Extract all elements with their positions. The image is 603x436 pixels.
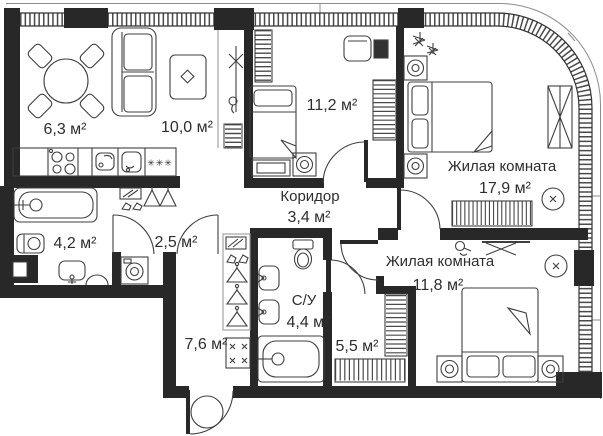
stove-icon (49, 149, 75, 174)
wall (376, 286, 416, 294)
lamp-icon (542, 361, 559, 378)
wall-left (4, 8, 20, 188)
wall (323, 232, 332, 260)
label-living-area: 10,0 м² (161, 119, 214, 136)
name-bedroom-11-8: Жилая комната (386, 253, 495, 270)
nightstand (404, 154, 427, 178)
pillow (503, 356, 535, 377)
radiator-living (224, 124, 242, 148)
lamp-icon (408, 158, 424, 174)
wall (440, 228, 588, 240)
label-storage: 2,5 м² (154, 234, 198, 251)
kitchen-sink-icon (96, 153, 114, 170)
wall-pier (398, 8, 424, 28)
cabinet-inner (257, 163, 285, 173)
wall (366, 178, 404, 188)
shoes-icon (227, 255, 248, 263)
wall-pier (64, 8, 108, 28)
rug (170, 55, 206, 99)
wall (408, 294, 416, 386)
door-bedroom-11-8 (340, 240, 378, 280)
shoe-cabinet (226, 338, 250, 368)
wall (112, 252, 121, 285)
bathtub (258, 336, 324, 382)
chair-icon (27, 93, 54, 120)
wardrobe (385, 294, 407, 356)
blanket-fold (281, 140, 296, 158)
cabinet (252, 160, 290, 176)
blanket-fold (474, 131, 492, 152)
wall (233, 386, 602, 398)
toilet-icon (17, 234, 44, 253)
mirror-icon (120, 188, 141, 199)
name-wc: С/У (292, 292, 317, 309)
wardrobe-11-2 (373, 80, 396, 140)
label-bathroom: 4,2 м² (53, 235, 97, 252)
washing-machine-icon (121, 257, 148, 284)
dresser-17-9 (548, 86, 572, 148)
vent-icon (542, 188, 564, 210)
nightstand (404, 56, 427, 80)
wall (378, 228, 398, 240)
blanket-fold (508, 308, 530, 334)
mirror-icon (226, 237, 246, 249)
wall-pier (574, 250, 594, 286)
label-hallway: 7,6 м² (184, 336, 228, 353)
label-bedroom-17-9: 17,9 м² (479, 180, 532, 197)
label-corridor: 3,4 м² (287, 209, 331, 226)
floor-plan: ✳✳✳ (0, 0, 603, 436)
lamp-icon (408, 60, 424, 76)
pillow (254, 90, 292, 106)
bathtub (14, 188, 97, 222)
pillow (412, 86, 428, 115)
freezer-icon: ✳✳✳ (147, 158, 173, 168)
hanger-icon (227, 306, 247, 326)
label-bedroom-11-8: 11,8 м² (413, 277, 464, 294)
plant-icon (413, 32, 438, 55)
hanger-icon (144, 188, 160, 207)
entry-mark (191, 396, 223, 428)
radiator-11-2 (255, 30, 272, 82)
wall (250, 228, 332, 238)
duct-access (13, 262, 27, 277)
wall (163, 386, 189, 398)
wall (396, 26, 404, 188)
pillow (412, 119, 428, 148)
shoes-icon (122, 203, 142, 210)
dish-rack-icon (122, 152, 141, 172)
pillow (467, 356, 499, 377)
tv-cabinet (374, 40, 388, 58)
chair-icon (79, 43, 106, 70)
lamp-icon (441, 361, 458, 378)
entry-door (186, 390, 233, 434)
nightstand (437, 356, 462, 382)
floor-plan-drawing: ✳✳✳ (0, 0, 603, 436)
wall (250, 232, 258, 390)
label-wardrobe-5-5: 5,5 м² (335, 338, 379, 355)
table-icon (44, 59, 88, 103)
chair-icon (79, 93, 106, 120)
wall (244, 178, 324, 188)
door-bathroom (113, 215, 154, 254)
wc-fixtures (258, 240, 324, 382)
sink-icon (59, 261, 85, 284)
door-room-11-2 (323, 140, 368, 183)
label-dining-area: 6,3 м² (43, 121, 87, 138)
sink-icon (258, 266, 279, 290)
toilet-icon (293, 240, 313, 269)
bed-double (408, 82, 492, 152)
armchair (344, 36, 371, 61)
name-bedroom-17-9: Жилая комната (448, 158, 557, 175)
tv-wall-unit (218, 30, 243, 148)
label-wc: 4,4 м² (286, 314, 330, 331)
bidet-icon (86, 275, 108, 285)
rug-diamond (181, 70, 194, 83)
bed-double (462, 288, 538, 382)
wall (13, 176, 180, 188)
sink-icon (258, 300, 279, 324)
hanger-icon (227, 284, 247, 304)
dining-table-set (27, 43, 106, 120)
hanger-icon (160, 188, 176, 207)
label-room-11-2: 11,2 м² (307, 97, 358, 114)
chair-icon (27, 43, 54, 70)
wall (0, 285, 176, 298)
hanger-icon (227, 262, 247, 282)
vent-icon (545, 255, 567, 277)
door-bedroom-17-9 (397, 188, 440, 230)
faucet-icon (272, 353, 284, 365)
wardrobe-17-9 (452, 201, 532, 226)
bed-single (250, 86, 296, 158)
door-wc (326, 258, 365, 294)
wall (163, 252, 176, 392)
sofa (112, 28, 156, 116)
faucet-icon (30, 199, 42, 211)
name-corridor: Коридор (280, 188, 339, 205)
wardrobe (335, 359, 405, 382)
